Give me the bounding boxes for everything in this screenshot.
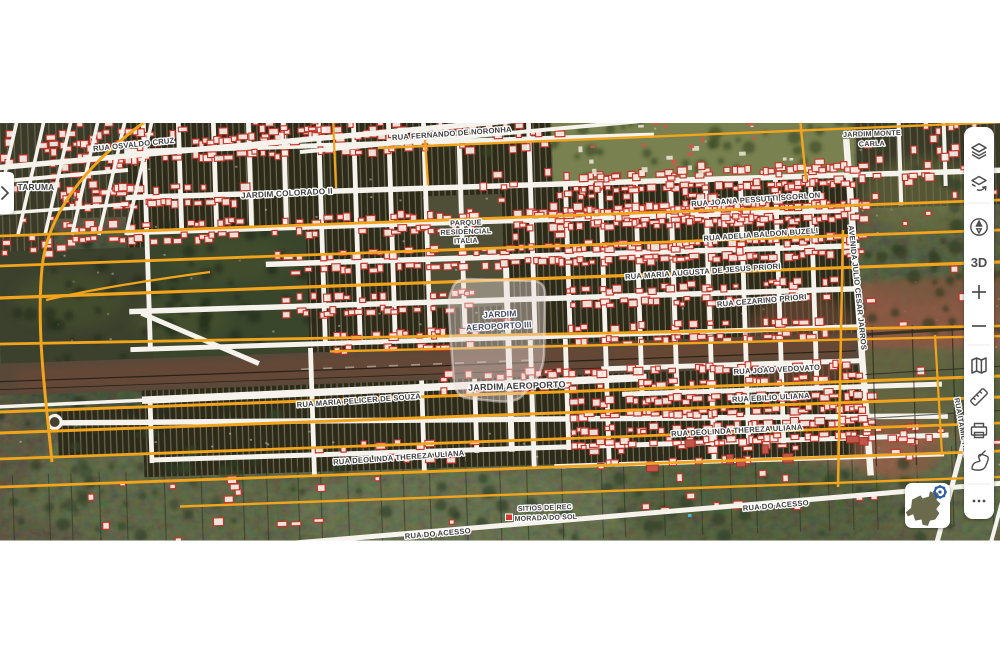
svg-text:TARUMA: TARUMA <box>18 182 55 192</box>
svg-text:ITALIA: ITALIA <box>454 236 478 246</box>
svg-text:3D: 3D <box>971 255 988 270</box>
svg-text:CARLA: CARLA <box>859 139 885 149</box>
